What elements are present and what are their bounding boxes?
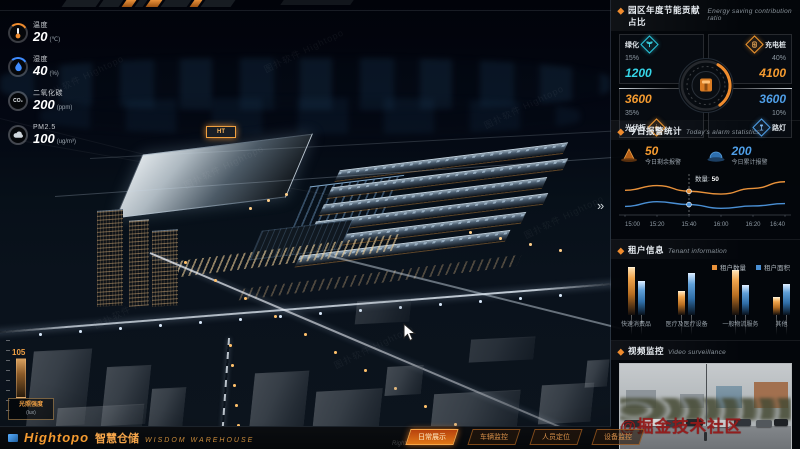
thermometer-icon (14, 27, 22, 39)
metric-value: 100(ug/m³) (33, 132, 76, 146)
metric-value: 200(ppm) (33, 98, 72, 112)
section-subtitle: Tenant information (668, 248, 727, 255)
metric-humidity: 湿度 40(%) (8, 56, 59, 78)
brand-name-cn: 智慧仓储 (95, 430, 139, 446)
right-panel: 园区年度节能贡献占比 Energy saving contribution ra… (611, 0, 800, 449)
gray-building (384, 365, 423, 396)
bar-租户面积 (783, 284, 790, 315)
svg-text:15:00: 15:00 (625, 222, 641, 228)
droplet-icon (14, 61, 23, 72)
energy-gauge (677, 56, 735, 119)
light-gradient-bar (16, 358, 26, 398)
charging-pile-icon (745, 35, 763, 53)
gray-building (249, 371, 309, 433)
metric-ring (8, 57, 28, 77)
gray-building (469, 336, 536, 362)
section-title: 今日报警统计 (628, 125, 682, 137)
nav-button-personnel[interactable]: 人员定位 (529, 429, 582, 445)
section-header: 视频监控 Video surveillance (611, 341, 800, 360)
metric-value: 20(℃) (33, 30, 60, 44)
section-title: 园区年度节能贡献占比 (628, 4, 704, 28)
bar-group: 医疗及医疗设备 (666, 263, 708, 328)
metric-temperature: 温度 20(℃) (8, 22, 60, 44)
dashboard-root: HT (0, 0, 800, 449)
bar-租户数量 (773, 297, 780, 315)
metric-ring (8, 125, 28, 145)
bar-group: 快速消费品 (621, 263, 651, 328)
tenant-bar-chart[interactable]: 快速消费品医疗及医疗设备一般物流服务其他 (611, 274, 800, 328)
bar-租户数量 (628, 267, 635, 315)
gray-building (355, 299, 412, 325)
section-subtitle: Today's alarm statistics (686, 129, 760, 136)
legend-swatch-icon (712, 265, 717, 270)
header-decoration (280, 0, 354, 5)
co2-icon: CO₂ (13, 98, 23, 104)
svg-text:15:20: 15:20 (649, 222, 665, 228)
header-decoration (62, 0, 236, 7)
alarm-dome-icon (706, 148, 726, 163)
svg-text:15:40: 15:40 (681, 222, 697, 228)
section-subtitle: Video surveillance (668, 349, 726, 356)
plant-icon (640, 35, 658, 53)
brand-name: Hightopo (24, 430, 89, 445)
metric-co2: CO₂ 二氧化碳 200(ppm) (8, 90, 72, 112)
brand-logo-icon (8, 434, 18, 442)
gray-building (585, 359, 610, 387)
gray-building (538, 383, 594, 425)
mouse-cursor (403, 323, 416, 347)
alarm-stat-remaining: 50 今日剩余报警 (619, 144, 706, 167)
metric-pm25: PM2.5 100(ug/m³) (8, 124, 76, 146)
bar-租户数量 (732, 270, 739, 315)
building-sign: HT (206, 126, 236, 138)
tenant-section: 租户信息 Tenant information 租户数量租户面积 快速消费品医疗… (611, 240, 800, 341)
header-bullet-icon (617, 129, 624, 136)
bar-租户面积 (688, 273, 695, 315)
energy-section: 园区年度节能贡献占比 Energy saving contribution ra… (611, 0, 800, 121)
office-tower (97, 209, 123, 307)
bar-category-label: 快速消费品 (621, 319, 651, 328)
collapse-arrow-icon[interactable]: » (597, 198, 604, 213)
svg-text:数量: 50: 数量: 50 (695, 174, 719, 183)
alarm-chart-svg: 数量: 5015:0015:2015:4016:0016:2016:40 (617, 169, 793, 233)
warning-beacon-icon (619, 148, 639, 163)
svg-text:16:20: 16:20 (745, 222, 761, 228)
header-bullet-icon (617, 8, 624, 15)
nav-button-daily[interactable]: 日常展示 (405, 429, 458, 445)
alarm-stat-total: 200 今日累计报警 (706, 144, 793, 167)
svg-text:16:00: 16:00 (713, 222, 729, 228)
section-title: 租户信息 (628, 244, 664, 256)
street-lights (0, 0, 1, 1)
bar-category-label: 医疗及医疗设备 (666, 319, 708, 328)
alarm-line-chart[interactable]: 数量: 5015:0015:2015:4016:0016:2016:40 (611, 167, 800, 240)
alarm-stats: 50 今日剩余报警 200 今日累计报警 (611, 140, 800, 167)
metric-ring (8, 23, 28, 43)
light-legend-label: 光照强度 (lux) (8, 398, 54, 420)
section-header: 园区年度节能贡献占比 Energy saving contribution ra… (611, 0, 800, 31)
bar-group: 一般物流服务 (722, 263, 758, 328)
bar-租户面积 (638, 281, 645, 315)
metric-ring: CO₂ (8, 91, 28, 111)
nav-button-vehicle[interactable]: 车辆监控 (467, 429, 520, 445)
bar-category-label: 一般物流服务 (722, 319, 758, 328)
section-header: 租户信息 Tenant information (611, 240, 800, 259)
section-subtitle: Energy saving contribution ratio (708, 8, 792, 22)
brand: Hightopo 智慧仓储 WISDOM WAREHOUSE (0, 430, 254, 446)
bar-group: 其他 (773, 263, 790, 328)
svg-text:16:40: 16:40 (770, 222, 786, 228)
metric-value: 40(%) (33, 64, 59, 78)
bar-租户数量 (678, 291, 685, 315)
header-bullet-icon (617, 248, 624, 255)
nav-buttons: 日常展示 车辆监控 人员定位 设备监控 (408, 429, 642, 445)
gray-building (148, 387, 186, 430)
section-title: 视频监控 (628, 345, 664, 357)
section-header: 今日报警统计 Today's alarm statistics (611, 121, 800, 140)
cloud-icon (13, 131, 24, 139)
bottom-bar: Hightopo 智慧仓储 WISDOM WAREHOUSE Rights Re… (0, 426, 611, 449)
header-bullet-icon (617, 349, 624, 356)
juejin-watermark: @掘金技术社区 (620, 413, 800, 437)
alarm-section: 今日报警统计 Today's alarm statistics 50 今日剩余报… (611, 121, 800, 240)
bar-租户面积 (742, 285, 749, 315)
nav-button-device[interactable]: 设备监控 (591, 429, 644, 445)
brand-subtitle: WISDOM WAREHOUSE (145, 437, 254, 444)
light-legend-value: 105 (12, 348, 25, 357)
